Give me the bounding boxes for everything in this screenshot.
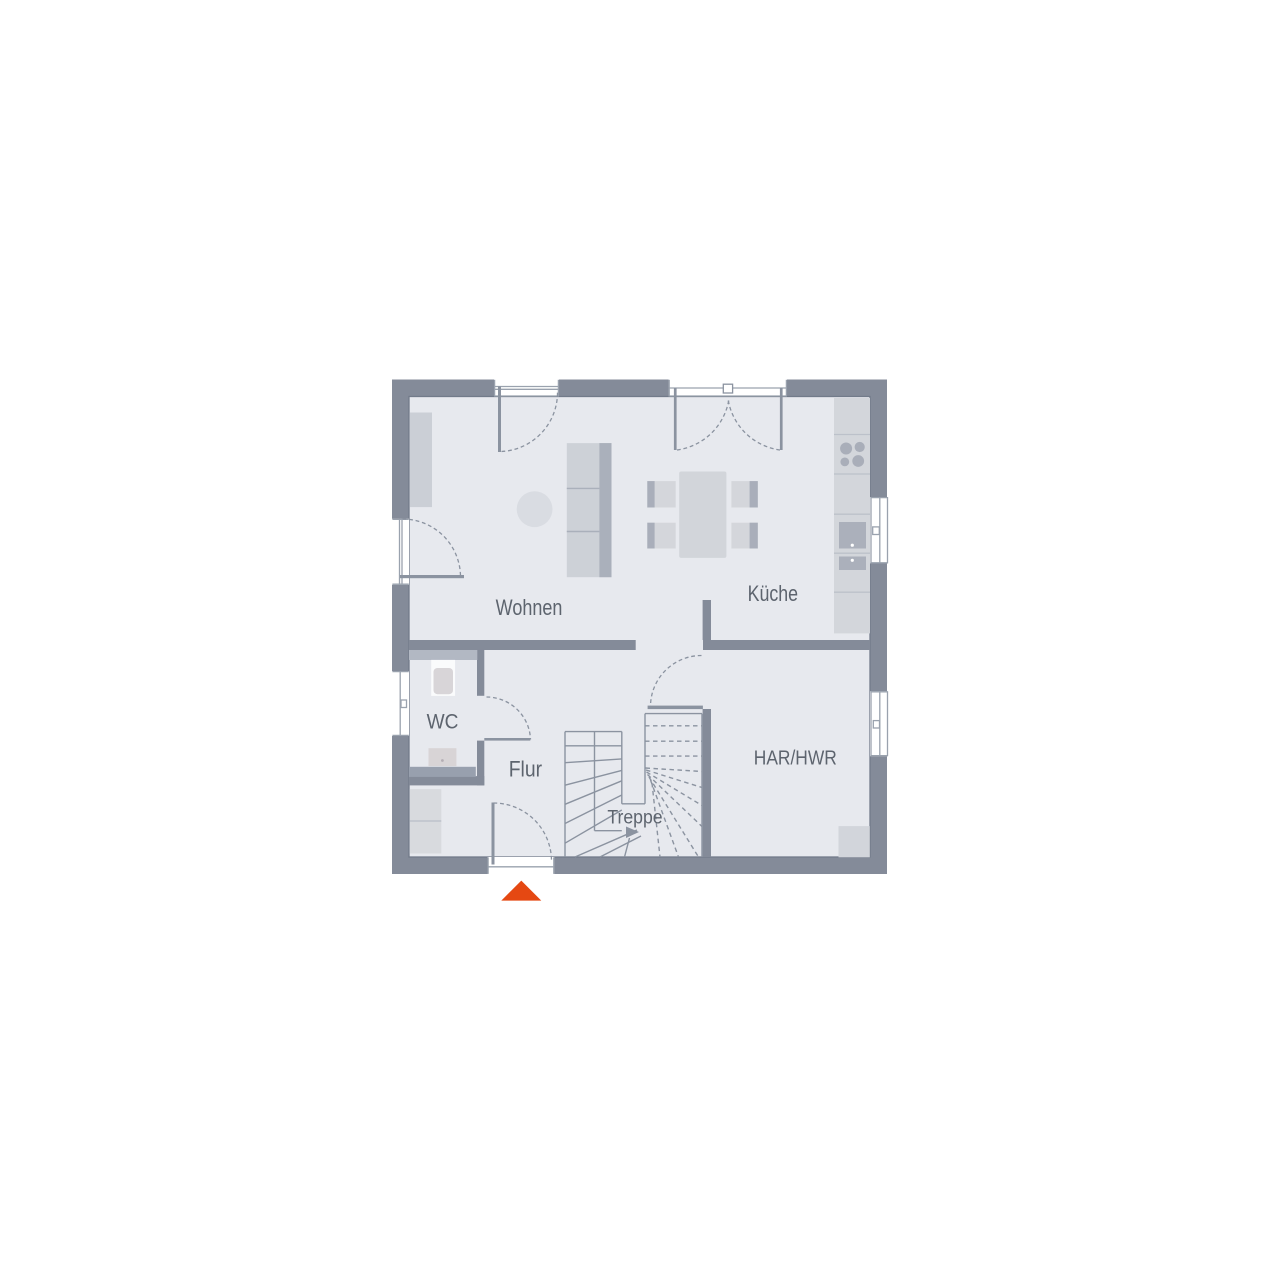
svg-text:HAR/HWR: HAR/HWR <box>754 747 837 769</box>
svg-text:WC: WC <box>427 711 459 734</box>
svg-text:Treppe: Treppe <box>607 806 662 828</box>
svg-text:Flur: Flur <box>509 757 542 781</box>
svg-text:Küche: Küche <box>748 582 798 606</box>
svg-text:Wohnen: Wohnen <box>496 596 563 620</box>
